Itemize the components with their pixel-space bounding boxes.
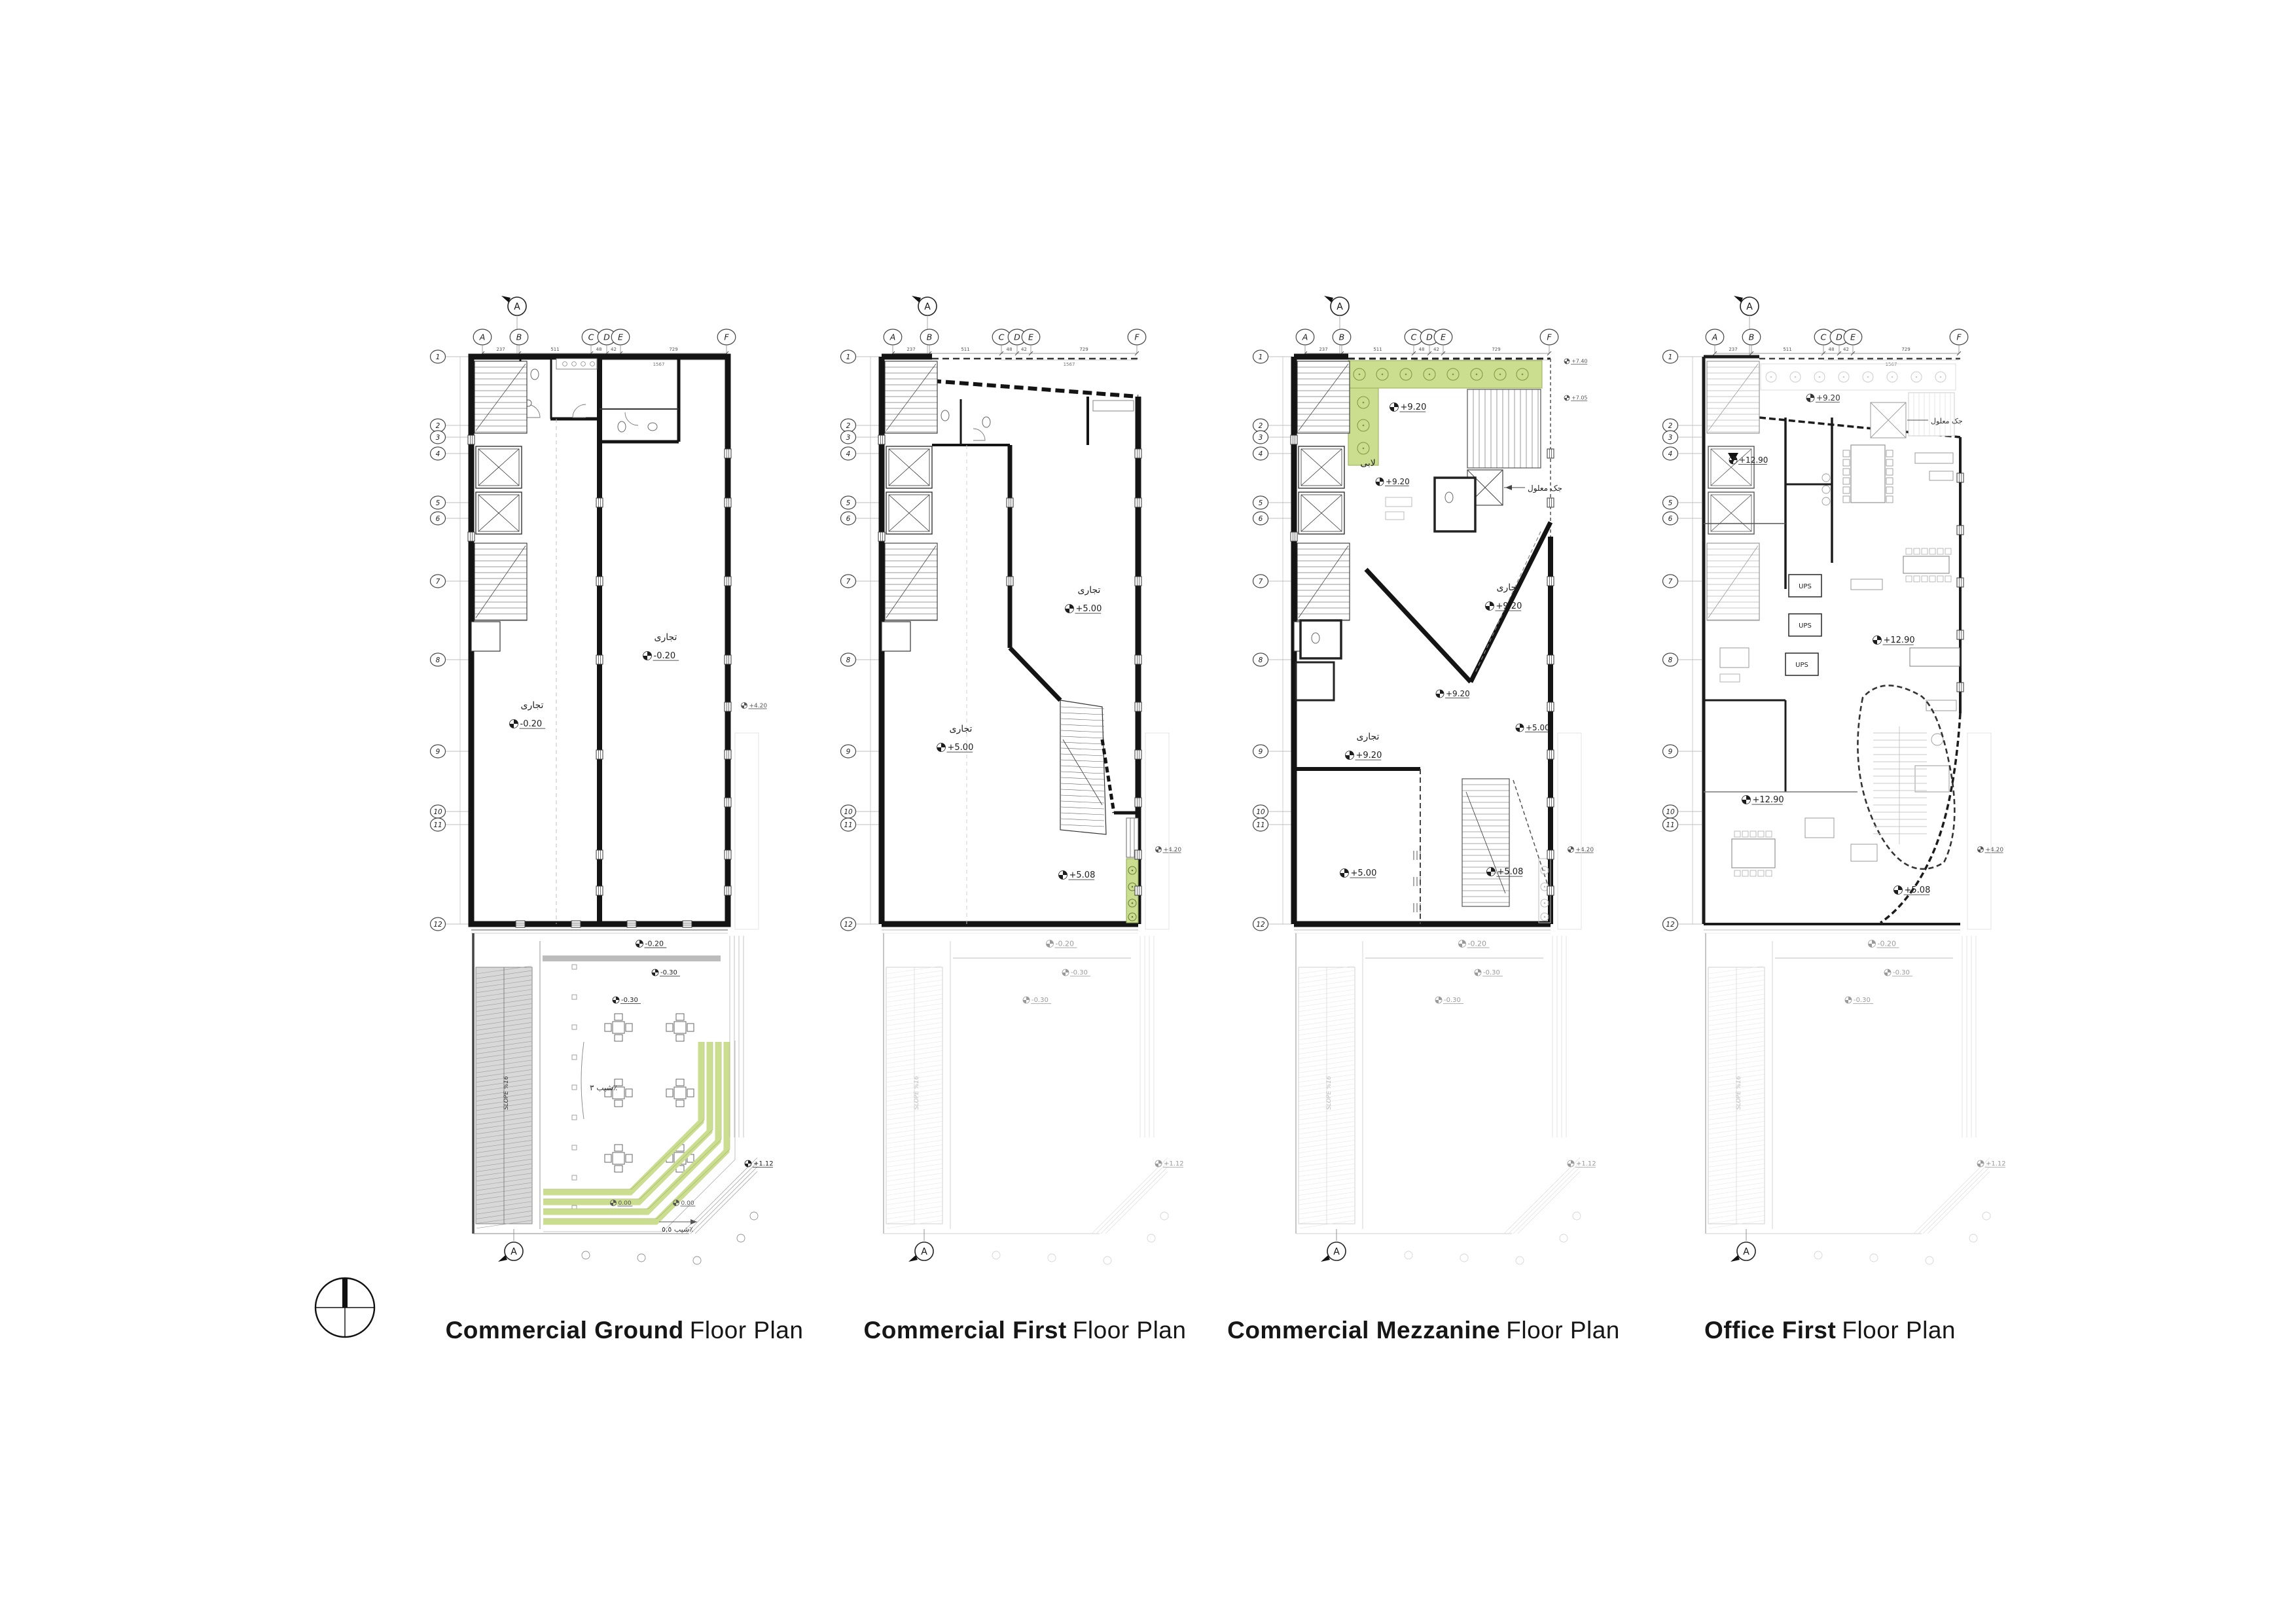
svg-text:D: D — [1836, 332, 1842, 342]
svg-text:+5.08: +5.08 — [1498, 867, 1524, 877]
level-marker: -0.20 — [1459, 940, 1490, 948]
wall-joint-mark — [596, 850, 603, 859]
slope-3-label: شیب ٣٪ — [590, 1083, 617, 1092]
ups-rooms: UPSUPSUPS — [1785, 575, 1821, 675]
wall-joint-mark — [1135, 702, 1141, 711]
level-marker: -0.20 — [643, 651, 679, 661]
svg-text:7: 7 — [846, 578, 851, 586]
svg-text:4: 4 — [1259, 450, 1263, 458]
level-marker: +5.00 — [937, 743, 974, 753]
svg-text:+1.12: +1.12 — [1576, 1160, 1596, 1168]
svg-text:6: 6 — [1259, 515, 1263, 523]
svg-text:A: A — [1336, 302, 1343, 312]
svg-text:-0.20: -0.20 — [520, 719, 543, 729]
grid-row-12: 12 — [1663, 918, 1678, 931]
svg-text:A: A — [1712, 332, 1718, 342]
grid-row-8: 8 — [1663, 653, 1678, 666]
svg-text:+1.12: +1.12 — [753, 1160, 774, 1168]
svg-text:-0.30: -0.30 — [1854, 997, 1871, 1004]
wall-joint-mark — [725, 655, 731, 664]
grid-row-5: 5 — [841, 496, 856, 509]
wall-joint-mark — [1547, 850, 1554, 859]
svg-text:8: 8 — [436, 656, 440, 664]
svg-text:SLOPE %16: SLOPE %16 — [1326, 1076, 1333, 1110]
svg-text:1: 1 — [436, 353, 440, 361]
wall-joint-mark — [1291, 532, 1297, 541]
wall-joint-mark — [1291, 435, 1297, 444]
grid-row-6: 6 — [431, 512, 446, 525]
north-compass-icon — [312, 1275, 378, 1342]
slope-55-label: شیب ٥,٥٪ — [662, 1225, 693, 1234]
wall-joint-mark — [1135, 449, 1141, 458]
svg-text:SLOPE %16: SLOPE %16 — [1736, 1076, 1742, 1110]
svg-text:9: 9 — [1668, 748, 1673, 756]
grid-row-1: 1 — [841, 350, 856, 363]
svg-text:2: 2 — [1668, 422, 1673, 430]
svg-text:3: 3 — [846, 434, 851, 442]
section-marker: A — [1321, 1242, 1346, 1262]
grid-row-6: 6 — [841, 512, 856, 525]
level-marker: +1.12 — [1155, 1160, 1184, 1168]
grid-column-B: B — [1333, 329, 1351, 345]
svg-text:2: 2 — [1259, 422, 1263, 430]
level-marker: +9.20 — [1806, 393, 1840, 402]
svg-text:+5.08: +5.08 — [1905, 885, 1931, 895]
svg-text:+5.00: +5.00 — [1526, 723, 1550, 732]
elevator — [1299, 446, 1344, 488]
svg-text:511: 511 — [550, 347, 559, 352]
level-marker: +5.00 — [1516, 723, 1550, 732]
svg-text:-0.20: -0.20 — [645, 940, 664, 948]
wall-joint-mark — [1957, 473, 1964, 482]
level-marker: -0.20 — [636, 940, 667, 948]
svg-text:-0.30: -0.30 — [621, 997, 638, 1004]
svg-text:-0.30: -0.30 — [1031, 997, 1049, 1004]
grid-row-10: 10 — [1663, 805, 1678, 818]
wall-joint-mark — [1007, 498, 1013, 507]
svg-text:-0.20: -0.20 — [1878, 940, 1896, 948]
svg-text:729: 729 — [1901, 347, 1910, 352]
wall-joint-mark — [1007, 577, 1013, 586]
svg-text:3: 3 — [436, 434, 440, 442]
plant-icon — [1863, 372, 1873, 382]
svg-text:D: D — [1426, 332, 1433, 342]
svg-text:237: 237 — [1729, 347, 1737, 352]
wall-joint-mark — [725, 577, 731, 586]
svg-text:C: C — [999, 332, 1005, 342]
level-marker: +5.08 — [1894, 885, 1931, 895]
drawing-sheet: AABCDEF23751148427291567123456789101112ت… — [0, 0, 2296, 1623]
svg-text:511: 511 — [961, 347, 969, 352]
grid-column-B: B — [1742, 329, 1761, 345]
wall-joint-mark — [596, 750, 603, 759]
svg-text:A: A — [1746, 302, 1753, 312]
wall-joint-mark — [1135, 798, 1141, 807]
svg-text:+9.20: +9.20 — [1496, 601, 1522, 611]
grid-row-10: 10 — [1253, 805, 1268, 818]
grid-column-F: F — [1950, 329, 1968, 345]
grid-row-8: 8 — [1253, 653, 1268, 666]
svg-text:F: F — [1134, 332, 1139, 342]
svg-text:42: 42 — [1021, 347, 1027, 352]
svg-text:+7.05: +7.05 — [1571, 395, 1588, 401]
level-marker: +9.20 — [1486, 601, 1522, 611]
wall-joint-mark — [725, 886, 731, 895]
title-commercial-mezzanine: Commercial MezzanineFloor Plan — [1221, 1317, 1626, 1344]
grid-row-11: 11 — [1253, 818, 1268, 831]
svg-text:C: C — [588, 332, 594, 342]
svg-text:+5.08: +5.08 — [1069, 870, 1096, 880]
level-marker: +1.12 — [745, 1160, 774, 1168]
grid-column-A: A — [1706, 329, 1724, 345]
plant-icon — [1766, 372, 1776, 382]
title-commercial-first: Commercial FirstFloor Plan — [822, 1317, 1228, 1344]
svg-text:+4.20: +4.20 — [1576, 847, 1594, 853]
section-marker: A — [501, 296, 526, 315]
level-marker: +9.20 — [1346, 751, 1382, 760]
grid-row-5: 5 — [431, 496, 446, 509]
svg-text:1: 1 — [1668, 353, 1673, 361]
stair — [475, 361, 527, 433]
wall-joint-mark — [725, 850, 731, 859]
grid-row-7: 7 — [1663, 575, 1678, 588]
room-label-commercial-left: تجاری+5.00 — [937, 724, 974, 753]
svg-text:UPS: UPS — [1795, 662, 1808, 669]
plant-icon — [1911, 372, 1922, 382]
svg-text:F: F — [1547, 332, 1552, 342]
grid-row-4: 4 — [841, 447, 856, 460]
wall-joint-mark — [725, 449, 731, 458]
svg-text:+4.20: +4.20 — [1164, 847, 1182, 853]
svg-text:A: A — [514, 302, 520, 312]
wall-joint-mark — [683, 921, 692, 927]
wall-joint-mark — [596, 498, 603, 507]
svg-text:42: 42 — [1433, 347, 1439, 352]
svg-text:5: 5 — [436, 499, 440, 507]
svg-text:+12.90: +12.90 — [1884, 635, 1915, 645]
grid-row-9: 9 — [1253, 745, 1268, 758]
svg-text:لابی: لابی — [1360, 458, 1376, 469]
level-marker: +1.12 — [1977, 1160, 2006, 1168]
elevator — [1708, 492, 1754, 534]
svg-text:+9.20: +9.20 — [1446, 689, 1470, 698]
plant-icon — [1541, 899, 1549, 907]
elevator — [476, 446, 522, 488]
office-furniture — [1720, 445, 1960, 876]
level-marker: +4.20 — [742, 703, 768, 709]
stair — [1707, 361, 1759, 433]
elevator — [476, 492, 522, 534]
wall-joint-mark — [1547, 577, 1554, 586]
svg-text:11: 11 — [1666, 821, 1674, 829]
wall-joint-mark — [1547, 750, 1554, 759]
wall-joint-mark — [571, 921, 581, 927]
grid-row-11: 11 — [841, 818, 856, 831]
svg-text:48: 48 — [1829, 347, 1835, 352]
level-marker: +1.12 — [1568, 1160, 1596, 1168]
svg-text:+9.20: +9.20 — [1816, 393, 1840, 402]
wall-joint-mark — [468, 532, 475, 541]
plan-commercial-mezzanine: AABCDEF23751148427291567123456789101112ج… — [1245, 281, 1611, 1302]
svg-text:11: 11 — [1256, 821, 1265, 829]
svg-text:تجاری: تجاری — [1497, 582, 1520, 593]
grid-row-9: 9 — [1663, 745, 1678, 758]
wall-joint-mark — [1135, 750, 1141, 759]
grid-column-A: A — [884, 329, 902, 345]
svg-text:UPS: UPS — [1799, 622, 1812, 630]
svg-text:+4.20: +4.20 — [749, 703, 768, 709]
grid-column-F: F — [1128, 329, 1146, 345]
svg-text:729: 729 — [669, 347, 677, 352]
svg-text:6: 6 — [1668, 515, 1673, 523]
level-marker: +4.20 — [1156, 847, 1182, 853]
svg-text:8: 8 — [1259, 656, 1263, 664]
level-marker: -0.20 — [510, 719, 546, 729]
grid-row-10: 10 — [431, 805, 446, 818]
wall-joint-mark — [1135, 886, 1141, 895]
room-label-commercial-right: تجاری-0.20 — [643, 632, 679, 661]
level-marker: +7.05 — [1564, 395, 1588, 401]
wall-joint-mark — [725, 498, 731, 507]
grid-row-10: 10 — [841, 805, 856, 818]
grid-row-12: 12 — [1253, 918, 1268, 931]
svg-text:تجاری: تجاری — [655, 632, 677, 643]
svg-text:+4.20: +4.20 — [1986, 847, 2004, 853]
plant-icon — [1887, 372, 1897, 382]
grid-row-1: 1 — [1663, 350, 1678, 363]
svg-text:+9.20: +9.20 — [1401, 402, 1427, 412]
svg-text:7: 7 — [436, 578, 440, 586]
svg-text:B: B — [1339, 332, 1345, 342]
grid-column-E: E — [1844, 329, 1862, 345]
stair — [1297, 361, 1350, 433]
svg-text:9: 9 — [436, 748, 440, 756]
stair — [885, 361, 937, 433]
ramp: SLOPE %16 — [1299, 966, 1355, 1228]
svg-text:2: 2 — [436, 422, 440, 430]
grid-row-2: 2 — [1663, 419, 1678, 432]
svg-text:511: 511 — [1373, 347, 1382, 352]
section-marker: A — [1324, 296, 1349, 315]
wall-joint-mark — [1957, 526, 1964, 535]
svg-text:8: 8 — [1668, 656, 1673, 664]
svg-text:237: 237 — [496, 347, 505, 352]
handicap-lift-label: جک معلول — [1528, 484, 1562, 493]
level-marker: +12.90 — [1873, 635, 1915, 645]
title-office-first: Office FirstFloor Plan — [1627, 1317, 2033, 1344]
svg-text:A: A — [889, 332, 896, 342]
level-marker: +7.40 — [1564, 359, 1588, 365]
wall-joint-mark — [1957, 683, 1964, 692]
grid-column-B: B — [920, 329, 939, 345]
svg-text:3: 3 — [1259, 434, 1263, 442]
wall-joint-mark — [1135, 655, 1141, 664]
section-marker: A — [498, 1242, 523, 1262]
svg-text:9: 9 — [846, 748, 851, 756]
svg-text:+7.40: +7.40 — [1571, 359, 1588, 365]
stair-roof — [1467, 389, 1541, 468]
svg-text:-0.20: -0.20 — [1056, 940, 1074, 948]
level-marker: +4.20 — [1978, 847, 2004, 853]
svg-text:-0.30: -0.30 — [1483, 969, 1500, 976]
svg-text:48: 48 — [596, 347, 602, 352]
grid-column-E: E — [1022, 329, 1040, 345]
svg-text:237: 237 — [1319, 347, 1327, 352]
svg-text:1567: 1567 — [653, 362, 665, 367]
svg-text:511: 511 — [1783, 347, 1791, 352]
svg-text:تجاری: تجاری — [521, 700, 544, 711]
plant-icon — [1814, 372, 1825, 382]
svg-text:10: 10 — [844, 808, 853, 816]
title-commercial-ground: Commercial GroundFloor Plan — [422, 1317, 827, 1344]
wall-joint-mark — [516, 921, 525, 927]
section-marker: A — [912, 296, 937, 315]
svg-text:A: A — [921, 1247, 927, 1257]
wall-joint-mark — [1547, 798, 1554, 807]
level-marker: +5.00 — [1066, 604, 1102, 614]
svg-text:5: 5 — [1668, 499, 1673, 507]
level-marker: -0.30 — [1062, 969, 1090, 976]
svg-text:42: 42 — [1843, 347, 1849, 352]
stair — [475, 543, 527, 620]
svg-text:E: E — [1441, 332, 1446, 342]
level-marker: +5.08 — [1059, 870, 1096, 880]
table-with-chairs — [666, 1014, 694, 1041]
wall-joint-mark — [1547, 449, 1554, 458]
level-marker: +9.20 — [1436, 689, 1470, 698]
svg-text:1: 1 — [1259, 353, 1263, 361]
svg-text:+1.12: +1.12 — [1164, 1160, 1184, 1168]
grid-row-9: 9 — [841, 745, 856, 758]
level-marker: -0.30 — [1435, 997, 1463, 1004]
svg-text:C: C — [1821, 332, 1827, 342]
level-marker: +12.90 — [1742, 795, 1784, 805]
level-marker: -0.20 — [1869, 940, 1899, 948]
wall-joint-mark — [1957, 578, 1964, 587]
grid-row-9: 9 — [431, 745, 446, 758]
ramp: SLOPE %16 — [886, 966, 942, 1228]
room-label-commercial-left: تجاری+9.20 — [1346, 732, 1382, 760]
svg-text:+12.90: +12.90 — [1753, 795, 1784, 805]
grid-row-2: 2 — [431, 419, 446, 432]
grid-row-4: 4 — [1663, 447, 1678, 460]
svg-text:9: 9 — [1259, 748, 1263, 756]
svg-text:UPS: UPS — [1799, 583, 1812, 590]
wall-joint-mark — [1135, 577, 1141, 586]
svg-text:12: 12 — [1256, 921, 1265, 929]
table-with-chairs — [605, 1014, 632, 1041]
wall-joint-mark — [596, 886, 603, 895]
svg-text:237: 237 — [906, 347, 915, 352]
grid-row-7: 7 — [431, 575, 446, 588]
grid-column-A: A — [473, 329, 492, 345]
svg-text:-0.20: -0.20 — [654, 651, 676, 661]
wall-joint-mark — [725, 798, 731, 807]
level-marker: +9.20 — [1390, 402, 1427, 412]
handicap-lift-label: جک معلول — [1931, 417, 1963, 425]
svg-text:4: 4 — [1668, 450, 1673, 458]
wall-joint-mark — [878, 435, 885, 444]
svg-text:تجاری: تجاری — [950, 724, 973, 734]
wall-joint-mark — [596, 655, 603, 664]
grid-row-8: 8 — [841, 653, 856, 666]
green-terrace-steps — [543, 1041, 735, 1232]
level-marker: -0.30 — [1023, 997, 1051, 1004]
grid-row-11: 11 — [1663, 818, 1678, 831]
svg-text:2: 2 — [846, 422, 851, 430]
svg-text:10: 10 — [433, 808, 442, 816]
wall-joint-mark — [725, 702, 731, 711]
svg-text:7: 7 — [1668, 578, 1673, 586]
svg-text:11: 11 — [844, 821, 852, 829]
level-marker: -0.30 — [1845, 997, 1873, 1004]
grid-column-F: F — [717, 329, 736, 345]
plant-icon — [1541, 913, 1549, 921]
svg-text:10: 10 — [1256, 808, 1265, 816]
ramp: SLOPE %16 — [476, 966, 532, 1228]
svg-text:SLOPE %16: SLOPE %16 — [503, 1076, 510, 1110]
grid-row-7: 7 — [1253, 575, 1268, 588]
svg-text:+9.20: +9.20 — [1386, 477, 1410, 486]
svg-text:E: E — [618, 332, 623, 342]
svg-text:E: E — [1028, 332, 1033, 342]
wall-joint-mark — [1135, 498, 1141, 507]
svg-text:+9.20: +9.20 — [1356, 751, 1382, 760]
grid-column-B: B — [510, 329, 528, 345]
grid-row-4: 4 — [1253, 447, 1268, 460]
table-with-chairs — [605, 1145, 632, 1172]
stair-roof-faint — [1909, 393, 1954, 436]
svg-text:5: 5 — [1259, 499, 1263, 507]
grid-column-A: A — [1296, 329, 1314, 345]
wall-joint-mark — [627, 921, 636, 927]
room-label-commercial-right: تجاری+9.20 — [1486, 582, 1522, 611]
svg-text:48: 48 — [1419, 347, 1425, 352]
stair — [1297, 543, 1350, 620]
plant-icon — [1935, 372, 1946, 382]
level-marker: -0.30 — [613, 997, 641, 1004]
grid-column-E: E — [611, 329, 630, 345]
wall-joint-mark — [468, 435, 475, 444]
grid-column-E: E — [1434, 329, 1452, 345]
grid-row-1: 1 — [1253, 350, 1268, 363]
grid-row-2: 2 — [1253, 419, 1268, 432]
svg-text:6: 6 — [846, 515, 851, 523]
svg-text:1567: 1567 — [1064, 362, 1075, 367]
grid-row-3: 3 — [1663, 431, 1678, 444]
level-marker: -0.30 — [1475, 969, 1503, 976]
grid-row-6: 6 — [1253, 512, 1268, 525]
svg-text:+5.00: +5.00 — [1076, 604, 1102, 614]
svg-text:6: 6 — [436, 515, 440, 523]
stair — [1707, 543, 1759, 620]
room-label-lobby: لابی+9.20 — [1360, 458, 1410, 486]
section-marker: A — [908, 1242, 933, 1262]
svg-text:5: 5 — [846, 499, 851, 507]
svg-text:7: 7 — [1259, 578, 1263, 586]
svg-text:10: 10 — [1666, 808, 1675, 816]
wall-joint-mark — [1547, 498, 1554, 507]
level-marker: -0.20 — [1047, 940, 1077, 948]
wall-joint-mark — [725, 750, 731, 759]
svg-text:0.00: 0.00 — [619, 1200, 632, 1207]
svg-text:3: 3 — [1668, 434, 1673, 442]
svg-text:A: A — [1333, 1247, 1340, 1257]
svg-text:+12.90: +12.90 — [1739, 455, 1768, 465]
svg-text:تجاری: تجاری — [1078, 585, 1101, 596]
elevator — [1299, 492, 1344, 534]
svg-text:A: A — [1743, 1247, 1749, 1257]
